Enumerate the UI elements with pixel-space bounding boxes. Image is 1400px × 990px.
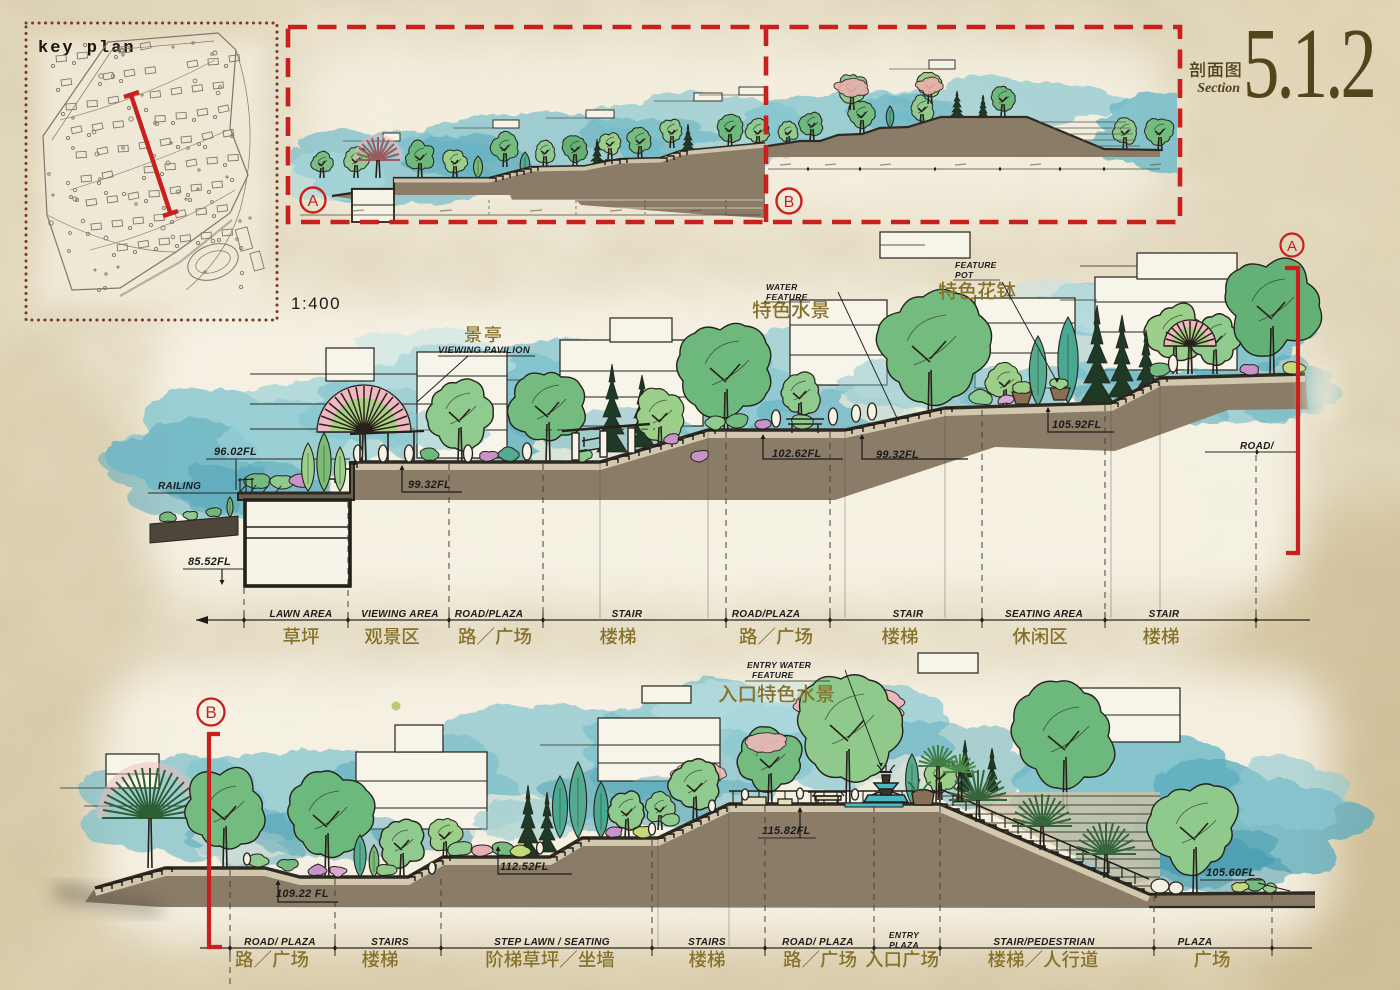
svg-text:POT: POT <box>955 270 974 280</box>
svg-text:5.1.2: 5.1.2 <box>1243 9 1374 120</box>
svg-text:Section: Section <box>1197 81 1240 96</box>
svg-text:STAIRS: STAIRS <box>688 937 726 948</box>
svg-text:PLAZA: PLAZA <box>1178 937 1213 948</box>
svg-text:1:400: 1:400 <box>291 294 341 313</box>
svg-text:SEATING AREA: SEATING AREA <box>1005 609 1083 620</box>
svg-text:FEATURE: FEATURE <box>955 260 997 270</box>
svg-text:STAIR: STAIR <box>893 609 924 620</box>
svg-text:ROAD/ PLAZA: ROAD/ PLAZA <box>244 937 316 948</box>
svg-text:ROAD/PLAZA: ROAD/PLAZA <box>732 609 801 620</box>
svg-text:VIEWING PAVILION: VIEWING PAVILION <box>438 345 531 356</box>
svg-text:ROAD/PLAZA: ROAD/PLAZA <box>455 609 524 620</box>
svg-text:VIEWING AREA: VIEWING AREA <box>361 609 439 620</box>
svg-text:STAIR: STAIR <box>1149 609 1180 620</box>
svg-text:STAIR: STAIR <box>612 609 643 620</box>
svg-text:PLAZA: PLAZA <box>889 940 919 950</box>
svg-text:109.22 FL: 109.22 FL <box>276 888 329 900</box>
svg-text:ROAD/ PLAZA: ROAD/ PLAZA <box>782 937 854 948</box>
svg-text:112.52FL: 112.52FL <box>500 861 549 873</box>
svg-text:105.60FL: 105.60FL <box>1206 867 1255 879</box>
svg-text:105.92FL: 105.92FL <box>1052 419 1101 431</box>
svg-text:FEATURE: FEATURE <box>766 292 808 302</box>
svg-text:RAILING: RAILING <box>158 481 201 492</box>
svg-text:99.32FL: 99.32FL <box>408 479 451 491</box>
svg-text:A: A <box>1287 238 1297 255</box>
svg-text:WATER: WATER <box>766 282 798 292</box>
svg-text:LAWN AREA: LAWN AREA <box>270 609 333 620</box>
svg-text:A: A <box>308 193 319 210</box>
svg-text:115.82FL: 115.82FL <box>762 825 811 837</box>
svg-text:B: B <box>784 194 795 211</box>
svg-text:STAIR/PEDESTRIAN: STAIR/PEDESTRIAN <box>993 937 1095 948</box>
svg-text:B: B <box>205 703 216 722</box>
svg-text:96.02FL: 96.02FL <box>214 446 257 458</box>
svg-text:102.62FL: 102.62FL <box>772 448 821 460</box>
svg-text:STEP LAWN / SEATING: STEP LAWN / SEATING <box>494 937 610 948</box>
svg-text:FEATURE: FEATURE <box>752 670 794 680</box>
svg-text:ENTRY: ENTRY <box>889 930 920 940</box>
svg-text:ENTRY WATER: ENTRY WATER <box>747 660 812 670</box>
svg-text:85.52FL: 85.52FL <box>188 556 231 568</box>
svg-text:STAIRS: STAIRS <box>371 937 409 948</box>
